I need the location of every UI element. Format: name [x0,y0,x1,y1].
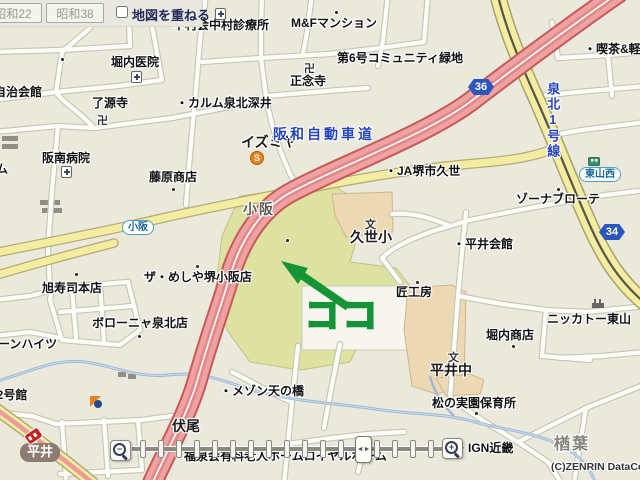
map-canvas [0,0,640,480]
zoom-slider-tick [374,440,380,458]
zoom-slider-tick [302,440,308,458]
zoom-out-button[interactable]: − [110,440,131,461]
hirai-road [0,406,94,480]
koko-annotation-text: ココ [305,288,381,337]
zoom-slider-tick [392,440,398,458]
zoom-slider-tick [320,440,326,458]
zoom-slider-thumb[interactable]: ◄► [355,436,372,463]
zoom-slider-tick [230,440,236,458]
zoom-slider-tick [338,440,344,458]
zoom-slider-tick [140,440,146,458]
zoom-slider-tick [248,440,254,458]
zoom-slider-tick [266,440,272,458]
zoom-slider-tick [158,440,164,458]
showa38-button[interactable]: 昭和38 [46,3,104,23]
overlay-map-checkbox[interactable] [116,6,128,18]
zoom-slider-tick [428,440,434,458]
zoom-slider-tick [194,440,200,458]
zoom-in-button[interactable]: + [442,438,463,459]
zoom-slider-tick [284,440,290,458]
toolbar: 昭和22 昭和38 地図を重ねる [0,0,203,27]
map-viewport[interactable]: 中村会中村診療所M&Fマンション堀内医院自治会館了源寺・カルム泉北深井正念寺第6… [0,0,640,480]
zoom-slider-tick [176,440,182,458]
zoom-in-magnifier-icon: + [445,441,458,454]
showa22-button[interactable]: 昭和22 [0,3,42,23]
zoom-slider-tick [410,440,416,458]
zoom-out-magnifier-icon: − [113,443,126,456]
zoom-slider-tick [212,440,218,458]
overlay-map-label[interactable]: 地図を重ねる [132,5,210,24]
senboku-1-road [497,0,640,304]
